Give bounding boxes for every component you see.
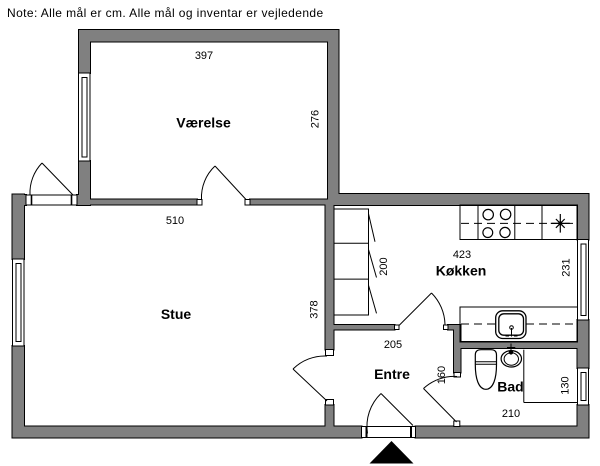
svg-text:130: 130 xyxy=(560,376,572,394)
svg-text:231: 231 xyxy=(561,258,573,276)
svg-text:Entre: Entre xyxy=(374,366,410,382)
svg-text:205: 205 xyxy=(384,339,402,351)
svg-text:Stue: Stue xyxy=(161,306,192,322)
svg-text:397: 397 xyxy=(195,50,213,62)
svg-text:Køkken: Køkken xyxy=(436,263,487,279)
svg-text:160: 160 xyxy=(436,366,448,384)
svg-text:276: 276 xyxy=(310,110,322,128)
svg-text:423: 423 xyxy=(453,249,471,261)
svg-text:210: 210 xyxy=(502,408,520,420)
svg-text:510: 510 xyxy=(166,215,184,227)
svg-text:Bad: Bad xyxy=(497,379,523,395)
svg-text:Note: Alle mål er cm. Alle mål: Note: Alle mål er cm. Alle mål og invent… xyxy=(7,6,324,20)
svg-text:378: 378 xyxy=(309,300,321,318)
svg-text:200: 200 xyxy=(378,257,390,275)
svg-text:Værelse: Værelse xyxy=(176,115,231,131)
